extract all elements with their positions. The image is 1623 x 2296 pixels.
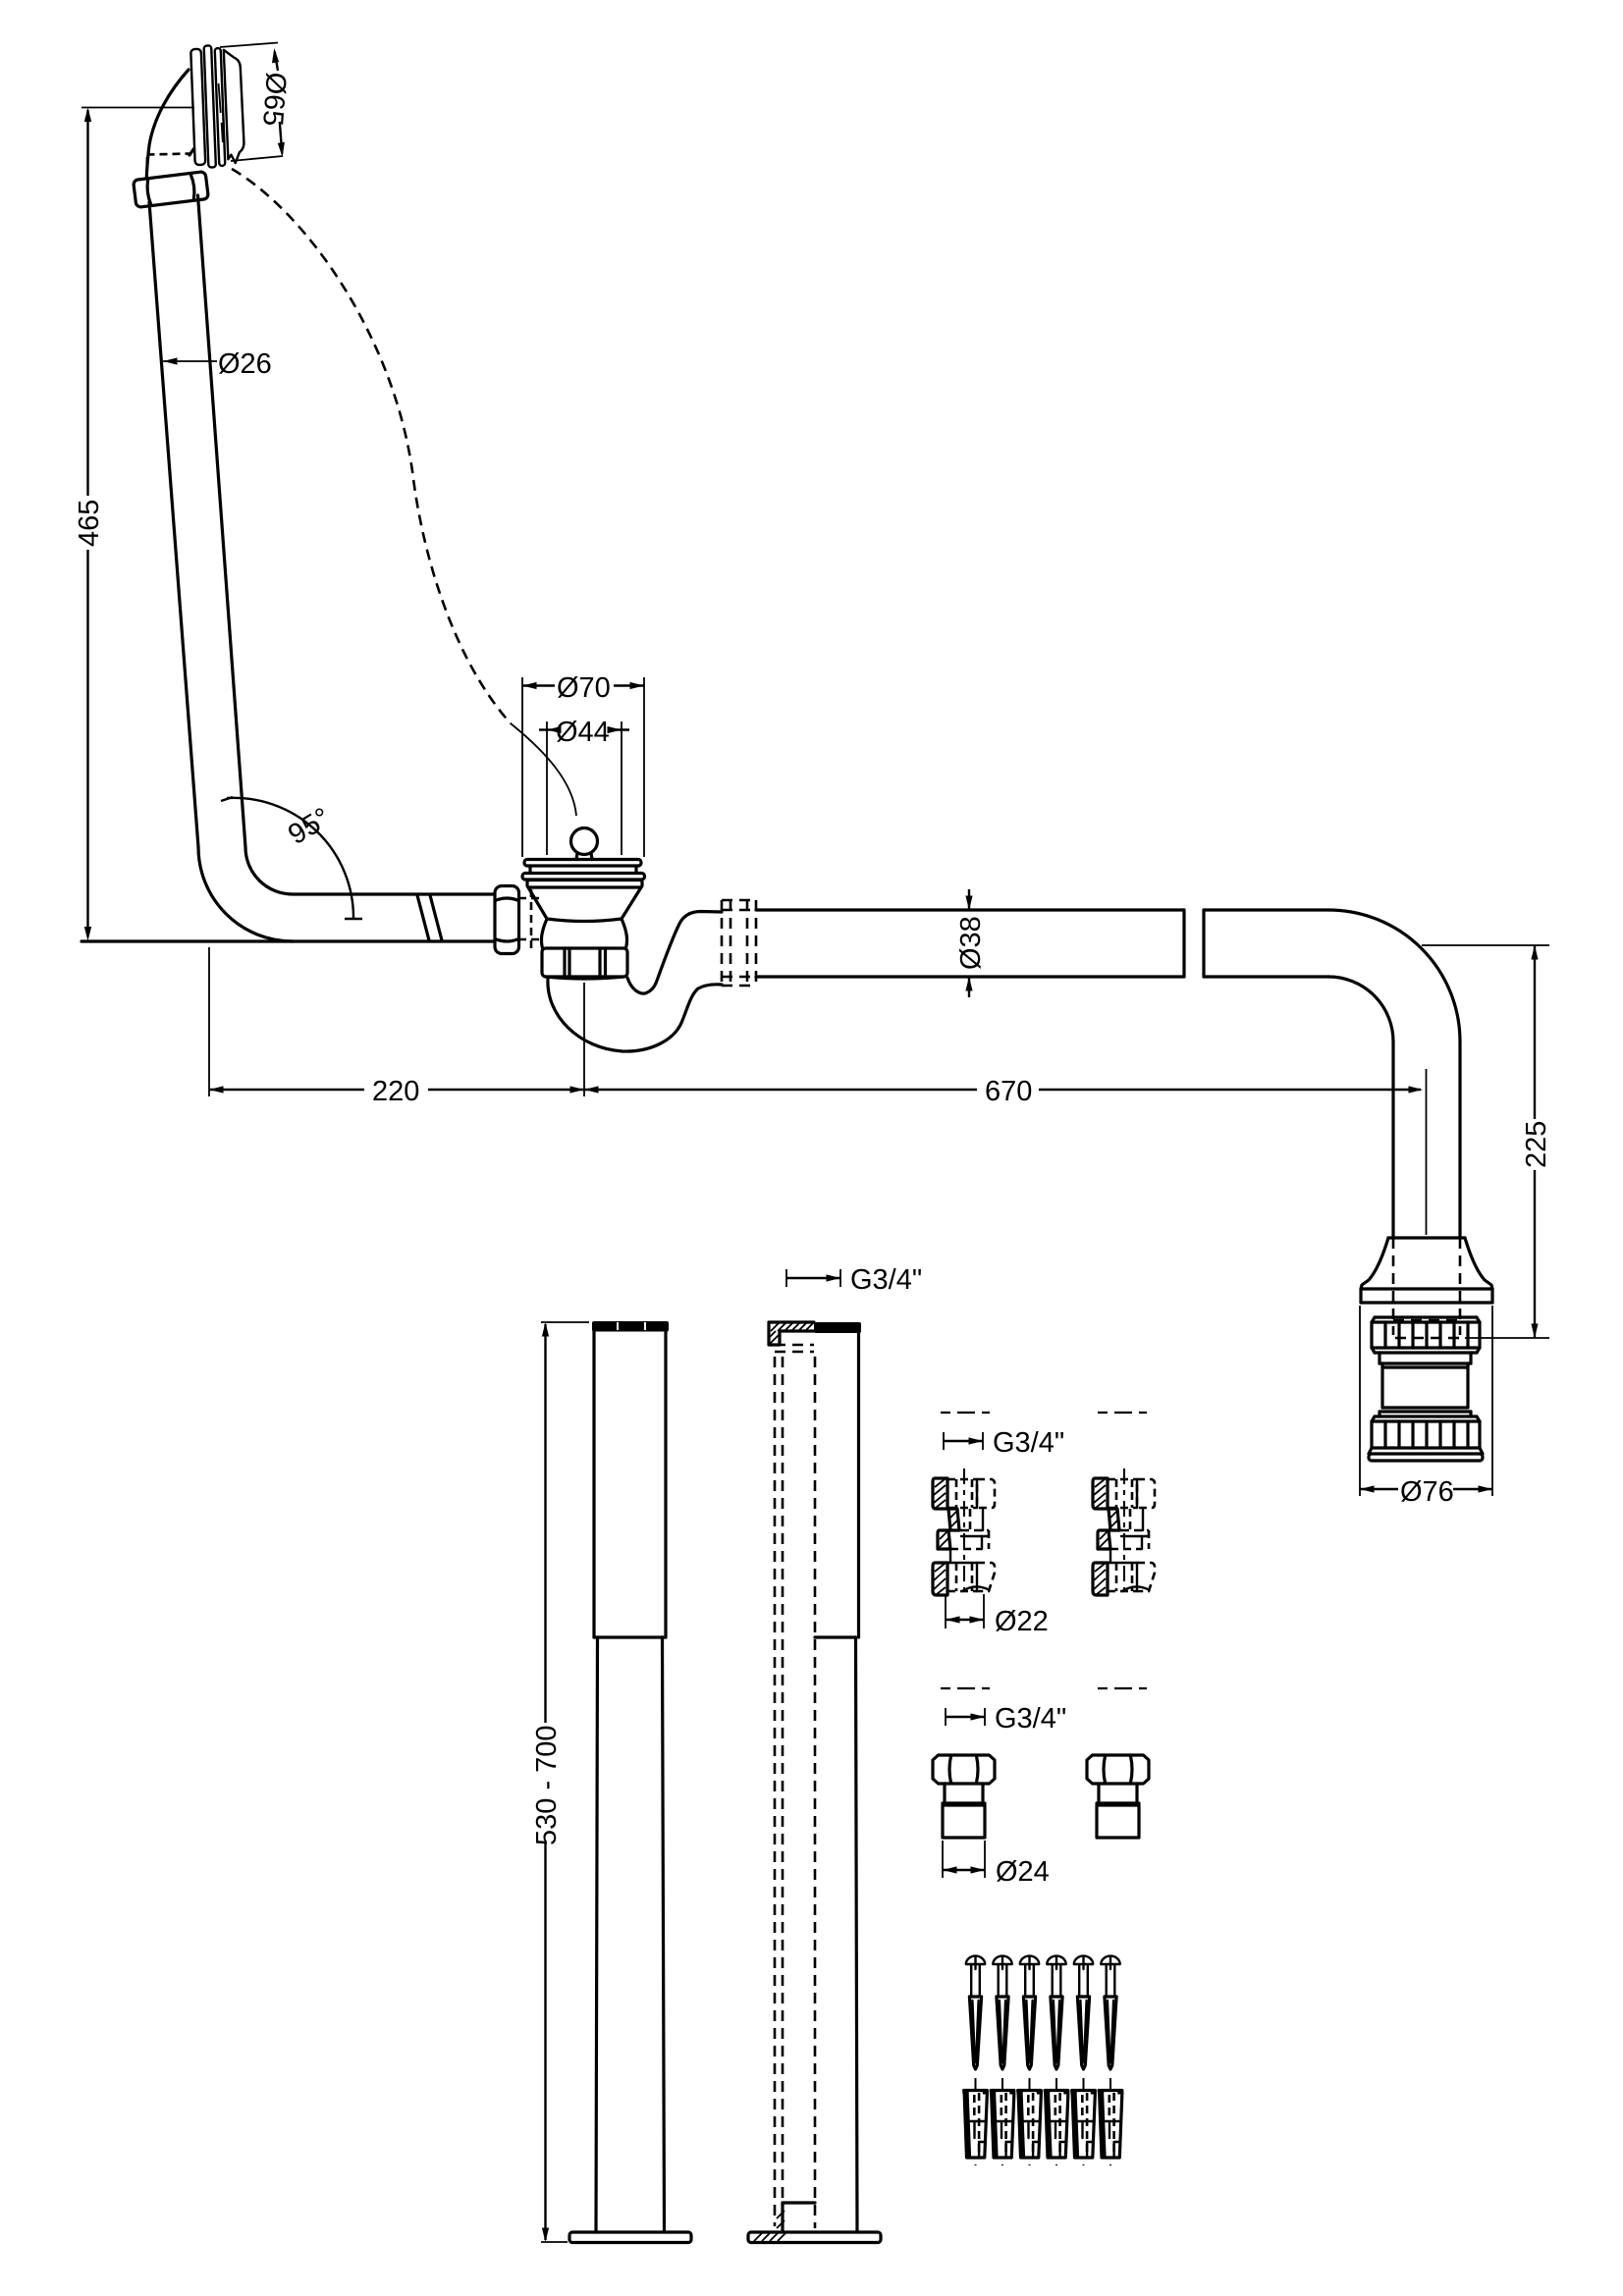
svg-text:Ø44: Ø44 xyxy=(556,717,610,748)
svg-text:220: 220 xyxy=(372,1076,419,1107)
svg-text:Ø38: Ø38 xyxy=(955,916,987,970)
svg-text:Ø22: Ø22 xyxy=(995,1606,1049,1637)
svg-text:G3/4": G3/4" xyxy=(995,1703,1066,1735)
svg-text:G3/4": G3/4" xyxy=(993,1427,1064,1459)
svg-text:Ø26: Ø26 xyxy=(218,348,272,380)
svg-text:465: 465 xyxy=(74,500,105,547)
svg-text:Ø70: Ø70 xyxy=(557,672,611,704)
svg-text:Ø24: Ø24 xyxy=(996,1856,1050,1888)
svg-text:Ø65: Ø65 xyxy=(256,72,292,128)
svg-text:Ø76: Ø76 xyxy=(1400,1476,1454,1508)
svg-text:670: 670 xyxy=(985,1076,1032,1107)
svg-text:G3/4": G3/4" xyxy=(850,1264,922,1296)
svg-text:225: 225 xyxy=(1521,1121,1552,1168)
svg-text:530 - 700: 530 - 700 xyxy=(531,1725,563,1845)
